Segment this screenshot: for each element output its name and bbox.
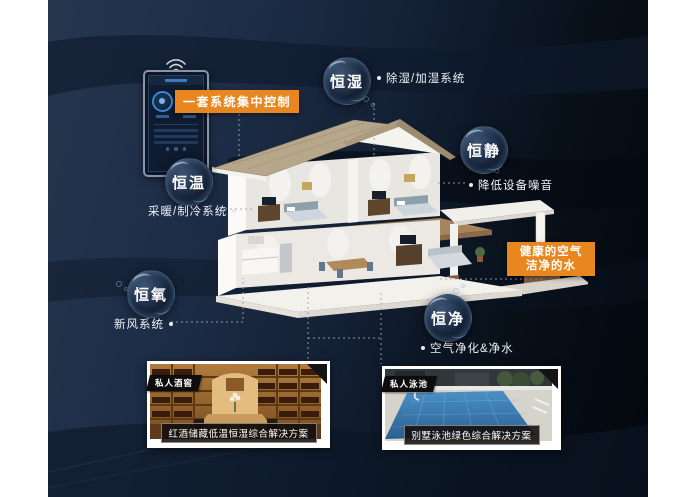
wine-cellar-photo: 私人酒窖 红酒储藏低温恒湿综合解决方案 <box>147 361 330 448</box>
control-panel-header <box>149 76 203 85</box>
health-badge: 健康的空气 洁净的水 <box>507 242 595 276</box>
bubble-label: 恒温 <box>172 172 206 193</box>
annotation-heating-cooling-system: 采暖/制冷系统 <box>148 203 236 219</box>
bubble-constant-clean: 恒净 <box>424 294 472 342</box>
connector-dot <box>169 322 173 326</box>
connector-dot <box>232 209 236 213</box>
annotation-label: 空气净化&净水 <box>430 340 514 356</box>
bubble-label: 恒净 <box>431 308 465 329</box>
connector-dot <box>469 183 473 187</box>
health-badge-line2: 洁净的水 <box>513 259 589 273</box>
roof <box>212 119 456 181</box>
photo-tag: 私人酒窖 <box>146 375 202 391</box>
control-panel-nav-dots <box>149 147 203 151</box>
annotation-label: 除湿/加湿系统 <box>386 70 465 86</box>
house-cutaway-illustration <box>188 104 588 329</box>
infographic-page: 一套系统集中控制 健康的空气 洁净的水 恒湿 恒静 恒温 恒氧 恒净 除湿/加湿… <box>0 0 700 497</box>
health-badge-line1: 健康的空气 <box>513 245 589 259</box>
bubble-constant-oxygen: 恒氧 <box>127 270 175 318</box>
connector-dot <box>421 346 425 350</box>
upper-floor <box>228 152 492 257</box>
bubble-label: 恒氧 <box>134 284 168 305</box>
pool-photo: 私人泳池 别墅泳池绿色综合解决方案 <box>382 366 561 450</box>
annotation-fresh-air-system: 新风系统 <box>114 316 173 332</box>
photo-caption: 别墅泳池绿色综合解决方案 <box>403 425 539 445</box>
photo-tag-label: 私人酒窖 <box>155 377 193 389</box>
connector-dot <box>377 76 381 80</box>
corner-ribbon <box>307 364 327 384</box>
corner-ribbon <box>538 369 558 389</box>
temperature-knob <box>152 91 173 112</box>
annotation-noise-reduction: 降低设备噪音 <box>469 177 553 193</box>
annotation-label: 降低设备噪音 <box>478 177 553 193</box>
bubble-label: 恒静 <box>467 140 501 161</box>
bubble-constant-humidity: 恒湿 <box>323 57 371 105</box>
photo-tag: 私人泳池 <box>381 376 437 392</box>
bubble-label: 恒湿 <box>330 71 364 92</box>
photo-tag-label: 私人泳池 <box>390 378 428 390</box>
bubble-constant-temperature: 恒温 <box>165 158 213 206</box>
annotation-label: 采暖/制冷系统 <box>148 203 227 219</box>
photo-caption: 红酒储藏低温恒湿综合解决方案 <box>160 423 316 443</box>
navy-canvas: 一套系统集中控制 健康的空气 洁净的水 恒湿 恒静 恒温 恒氧 恒净 除湿/加湿… <box>48 0 648 497</box>
control-panel-readouts <box>149 115 203 118</box>
bubble-constant-quiet: 恒静 <box>460 126 508 174</box>
control-panel-rows <box>154 124 198 144</box>
annotation-label: 新风系统 <box>114 316 164 332</box>
lower-floor <box>218 220 485 296</box>
annotation-dehumidify-system: 除湿/加湿系统 <box>377 70 465 86</box>
annotation-air-water-purification: 空气净化&净水 <box>421 340 514 356</box>
central-control-badge: 一套系统集中控制 <box>175 90 299 113</box>
